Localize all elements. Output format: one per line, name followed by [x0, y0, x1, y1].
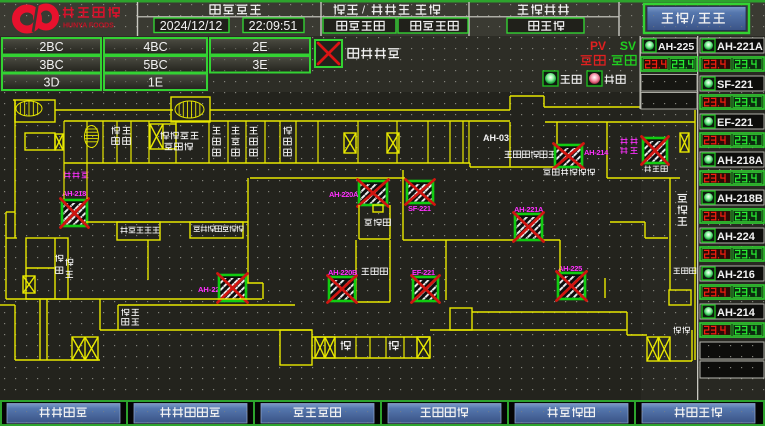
- svg-text:AH-218B: AH-218B: [717, 193, 763, 205]
- svg-text:2BC: 2BC: [39, 40, 63, 54]
- svg-text:AH-214: AH-214: [584, 148, 609, 157]
- svg-text:2024/12/12: 2024/12/12: [160, 19, 223, 33]
- svg-text:AH-216: AH-216: [717, 269, 755, 281]
- svg-text:AH-220A: AH-220A: [329, 190, 359, 199]
- svg-text:AH-218A: AH-218A: [717, 155, 763, 167]
- svg-text:3E: 3E: [252, 58, 267, 72]
- svg-text:SV: SV: [620, 39, 636, 53]
- svg-text:EF-221: EF-221: [717, 117, 753, 129]
- svg-text:4BC: 4BC: [143, 40, 167, 54]
- svg-text:AH-221A: AH-221A: [717, 41, 763, 53]
- svg-text:AH-224: AH-224: [717, 231, 756, 243]
- svg-text:EF-221: EF-221: [412, 268, 435, 277]
- svg-text:22:09:51: 22:09:51: [249, 19, 298, 33]
- svg-text:HUNYA FOODS: HUNYA FOODS: [63, 23, 114, 30]
- svg-text:PV: PV: [590, 39, 606, 53]
- svg-text:AH-221A: AH-221A: [514, 205, 544, 214]
- svg-text:5BC: 5BC: [143, 58, 167, 72]
- svg-text:AH-225: AH-225: [658, 41, 694, 53]
- svg-text:AH-03: AH-03: [483, 133, 509, 143]
- svg-text:3D: 3D: [44, 75, 60, 89]
- svg-text:AH-214: AH-214: [717, 307, 756, 319]
- svg-text:2E: 2E: [252, 40, 267, 54]
- svg-text:AH-218: AH-218: [62, 189, 86, 198]
- svg-text:SF-221: SF-221: [717, 79, 753, 91]
- svg-text:3BC: 3BC: [39, 58, 63, 72]
- svg-text:AH-225: AH-225: [558, 264, 582, 273]
- svg-text:1E: 1E: [148, 75, 163, 89]
- svg-text:SF-221: SF-221: [408, 204, 431, 213]
- svg-text:AH-220B: AH-220B: [328, 268, 358, 277]
